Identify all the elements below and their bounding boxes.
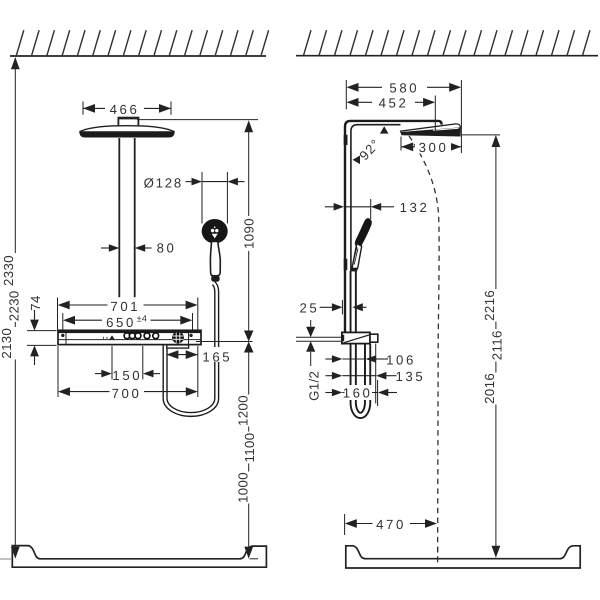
svg-text:466: 466 xyxy=(110,102,140,117)
svg-text:701: 701 xyxy=(110,299,140,314)
svg-text:470: 470 xyxy=(376,517,406,532)
svg-text:2216: 2216 xyxy=(482,290,497,321)
svg-text:74: 74 xyxy=(28,295,43,310)
svg-text:160: 160 xyxy=(343,386,373,401)
svg-text:2116: 2116 xyxy=(489,330,504,360)
svg-text:650: 650 xyxy=(106,315,136,330)
svg-text:700: 700 xyxy=(112,386,142,401)
svg-text:1000: 1000 xyxy=(235,472,250,503)
svg-text:165: 165 xyxy=(202,350,232,365)
svg-text:2016: 2016 xyxy=(482,373,497,404)
svg-text:25: 25 xyxy=(299,300,319,315)
svg-text:300: 300 xyxy=(419,140,449,155)
svg-text:580: 580 xyxy=(389,81,419,96)
svg-text:132: 132 xyxy=(400,200,430,215)
svg-text:2130: 2130 xyxy=(0,328,14,359)
svg-text:2330: 2330 xyxy=(1,255,16,286)
svg-text:±4: ±4 xyxy=(137,314,148,324)
svg-text:135: 135 xyxy=(395,369,425,384)
svg-text:1100: 1100 xyxy=(242,433,257,463)
svg-text:Ø128: Ø128 xyxy=(144,175,183,190)
svg-text:80: 80 xyxy=(157,241,177,256)
svg-text:1200: 1200 xyxy=(235,395,250,426)
svg-text:1090: 1090 xyxy=(242,218,257,249)
svg-text:106: 106 xyxy=(386,352,416,367)
svg-text:2230: 2230 xyxy=(7,290,22,321)
svg-text:G1/2: G1/2 xyxy=(306,371,321,401)
svg-text:150: 150 xyxy=(112,368,142,383)
svg-text:452: 452 xyxy=(379,96,409,111)
